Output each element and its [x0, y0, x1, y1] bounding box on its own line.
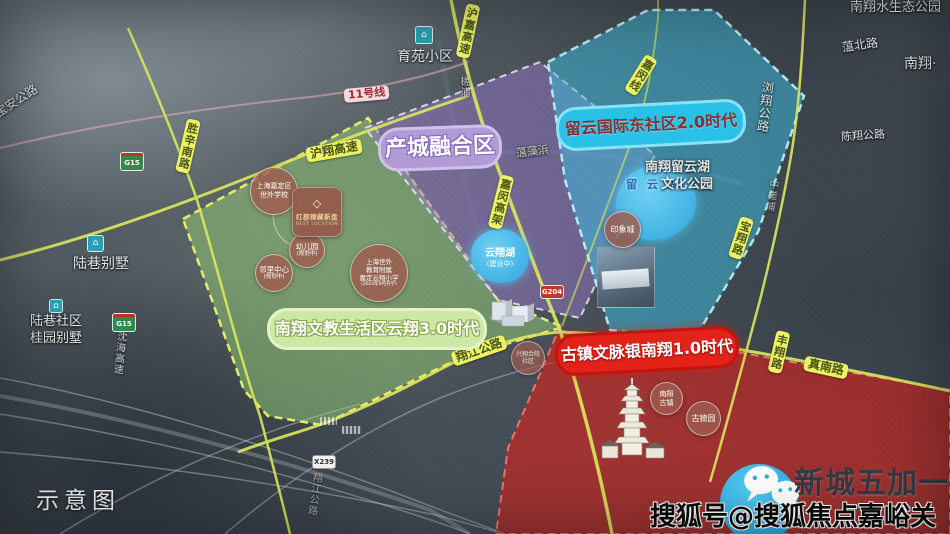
poi-line: 兴翔合院 [516, 351, 540, 359]
poi-line: 邻里中心 [259, 265, 289, 274]
community-icon [87, 235, 104, 252]
luxiang-community-line2: 桂园别墅 [30, 331, 82, 346]
community-icon [49, 299, 63, 313]
zone-banner-industry: 产城融合区 [377, 124, 502, 172]
liuyun-park-label-line2: 文化公园 [661, 173, 713, 192]
sohu-watermark: 搜狐号@搜狐焦点嘉峪关站 [650, 496, 950, 534]
poi-kindergarten: 幼儿园(规划中) [289, 232, 325, 268]
poi-wsw-school: 上海嘉定区世外学校 [250, 167, 298, 215]
poi-line: 社区 [522, 358, 534, 366]
impression-city-photo [597, 246, 655, 308]
chenxiang-hwy-label: 陈翔公路 [840, 125, 885, 144]
g15-badge-north: G15 [120, 152, 144, 171]
yunzaobang-river-label: 蕰藻浜 [515, 141, 549, 160]
small-map-label [320, 417, 337, 425]
poi-line: (规划中) [297, 251, 318, 258]
poi-line: 南翔 [660, 390, 674, 399]
chapu-river-label: 槎浦 [456, 76, 471, 98]
zone-banner-wenjiao-label: 南翔文教生活区云翔3.0时代 [275, 321, 479, 337]
poi-line: 世外学校 [260, 191, 288, 200]
zone-banner-liuyun-label: 留云国际东社区2.0时代 [565, 113, 738, 138]
poi-line: 古猗园 [692, 414, 716, 424]
g15-badge-south: G15 [112, 313, 136, 332]
poi-yunxiang-primary-school: 上海世外教育附属嘉定云翔小学(2024年9月开学) [350, 244, 408, 302]
small-map-label [342, 426, 361, 434]
sketch-watermark: 示意图 [36, 481, 120, 515]
poi-hongjun-project-badge: 红郡臻藏新盘 BEST LOCATION [292, 187, 342, 237]
project-buildings-render [482, 288, 548, 336]
hongjun-logo-icon [313, 198, 321, 209]
hongjun-project-subtitle: BEST LOCATION [296, 222, 338, 227]
zone-banner-guzhen-label: 古镇文脉银南翔1.0时代 [561, 339, 734, 364]
luxiang-community-label: 陆巷社区桂园别墅 [30, 314, 82, 348]
poi-line: 幼儿园 [296, 242, 319, 251]
poi-guyi-garden: 古猗园 [686, 401, 721, 436]
poi-line: 古镇 [660, 399, 674, 408]
poi-line: 印象城 [611, 225, 635, 235]
zone-banner-industry-label: 产城融合区 [385, 135, 496, 161]
poi-line: (规划中) [264, 274, 285, 281]
poi-neighborhood-center: 邻里中心(规划中) [255, 254, 293, 292]
luxiang-community-line1: 陆巷社区 [30, 314, 82, 329]
yunxiang-lake-label: 云翔湖 [485, 244, 515, 259]
poi-line: 上海嘉定区 [257, 182, 292, 191]
yuyuan-estate-label: 育苑小区 [397, 46, 453, 66]
poi-nanxiang-old-town: 南翔古镇 [650, 382, 683, 415]
satellite-planning-map: 产城融合区 留云国际东社区2.0时代 南翔文教生活区云翔3.0时代 古镇文脉银南… [0, 0, 950, 534]
zone-banner-wenjiao: 南翔文教生活区云翔3.0时代 [267, 308, 487, 350]
poi-line: 上海世外 [366, 258, 392, 266]
poi-line: (2024年9月开学) [361, 282, 397, 288]
poi-impression-city: 印象城 [604, 211, 641, 248]
photo-building-shape [602, 268, 650, 289]
x239-badge: X239 [312, 455, 336, 469]
eco-park-label: 南翔水生态公园 [850, 0, 941, 15]
nanxiang-partial-label: 南翔· [904, 53, 936, 73]
community-icon [415, 26, 433, 44]
poi-xinghe-community: 兴翔合院社区 [511, 341, 545, 375]
luxiang-villa-label: 陆巷别墅 [73, 253, 129, 273]
hongjun-project-name: 红郡臻藏新盘 [296, 211, 338, 221]
yunxiang-lake: 云翔湖 (建设中) [471, 229, 529, 283]
yunxiang-lake-status: (建设中) [487, 259, 513, 269]
